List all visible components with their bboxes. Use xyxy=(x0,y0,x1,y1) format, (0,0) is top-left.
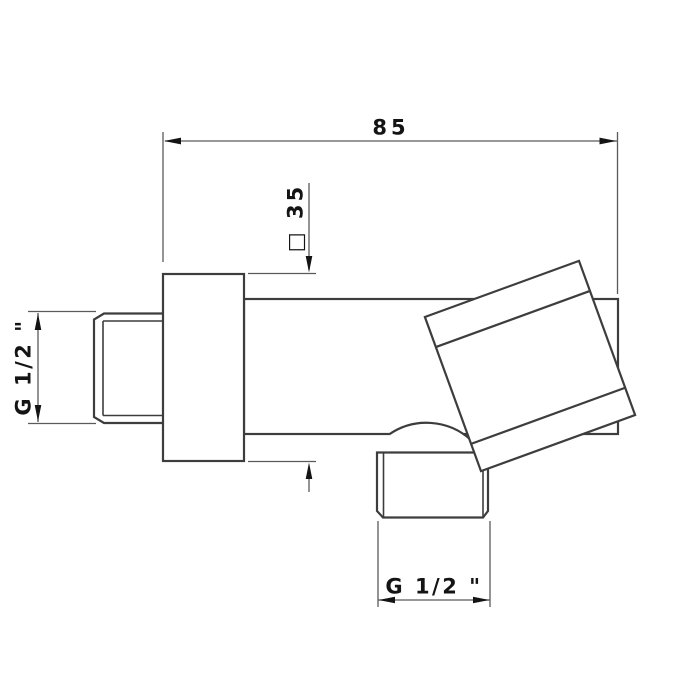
arrow-85-left xyxy=(164,138,181,145)
arrow-inlet-up xyxy=(35,314,42,331)
object-lines xyxy=(94,261,635,518)
label-outlet-thread: G 1/2 " xyxy=(385,575,482,599)
label-flange-square: □ 35 xyxy=(284,184,308,252)
arrow-85-right xyxy=(600,138,617,145)
inlet-thread xyxy=(94,314,165,424)
arrow-inlet-down xyxy=(35,405,42,422)
label-inlet-thread: G 1/2 " xyxy=(12,318,36,415)
technical-drawing: 85 □ 35 G 1/2 " G 1/2 " xyxy=(0,0,700,700)
wall-flange xyxy=(163,274,244,461)
drawing-canvas: 85 □ 35 G 1/2 " G 1/2 " xyxy=(0,0,700,700)
arrow-35-down xyxy=(306,256,313,273)
outlet-connector xyxy=(377,453,488,518)
label-overall-length: 85 xyxy=(372,116,409,140)
arrow-35-up xyxy=(306,463,313,480)
